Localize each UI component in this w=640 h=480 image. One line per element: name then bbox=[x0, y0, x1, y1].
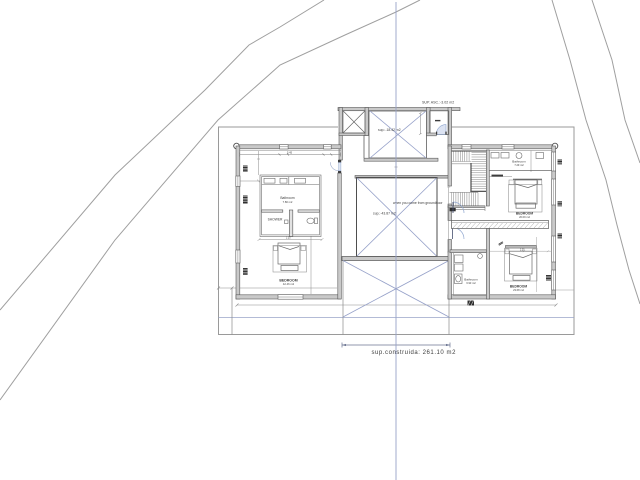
svg-text:sup.:-43.87 m2: sup.:-43.87 m2 bbox=[373, 212, 396, 216]
svg-text:Bathroom: Bathroom bbox=[280, 196, 295, 200]
svg-text:6.93 m2: 6.93 m2 bbox=[466, 281, 476, 285]
svg-text:sup.:-18.42 m2: sup.:-18.42 m2 bbox=[378, 128, 401, 132]
svg-text:BEDROOM: BEDROOM bbox=[510, 285, 527, 289]
svg-text:SUP. ASC.:-3.02 m2: SUP. ASC.:-3.02 m2 bbox=[422, 101, 454, 105]
svg-text:when you come from groundfloor: when you come from groundfloor bbox=[393, 201, 443, 205]
svg-text:7.29 m2: 7.29 m2 bbox=[514, 163, 524, 167]
svg-text:BEDROOM: BEDROOM bbox=[516, 212, 533, 216]
svg-text:sup.construida: 261.10 m2: sup.construida: 261.10 m2 bbox=[372, 350, 457, 356]
svg-text:20.09 m2: 20.09 m2 bbox=[519, 215, 530, 219]
svg-text:23.68 m2: 23.68 m2 bbox=[513, 288, 524, 292]
svg-text:SHOWER: SHOWER bbox=[268, 217, 283, 221]
svg-text:Bathroom: Bathroom bbox=[464, 278, 478, 282]
svg-text:7.80 m2: 7.80 m2 bbox=[283, 200, 293, 204]
svg-text:5.45: 5.45 bbox=[287, 151, 293, 155]
svg-text:42.46 m2: 42.46 m2 bbox=[283, 282, 295, 286]
svg-text:Bathroom: Bathroom bbox=[512, 160, 526, 164]
svg-text:BEDROOM: BEDROOM bbox=[279, 279, 297, 283]
